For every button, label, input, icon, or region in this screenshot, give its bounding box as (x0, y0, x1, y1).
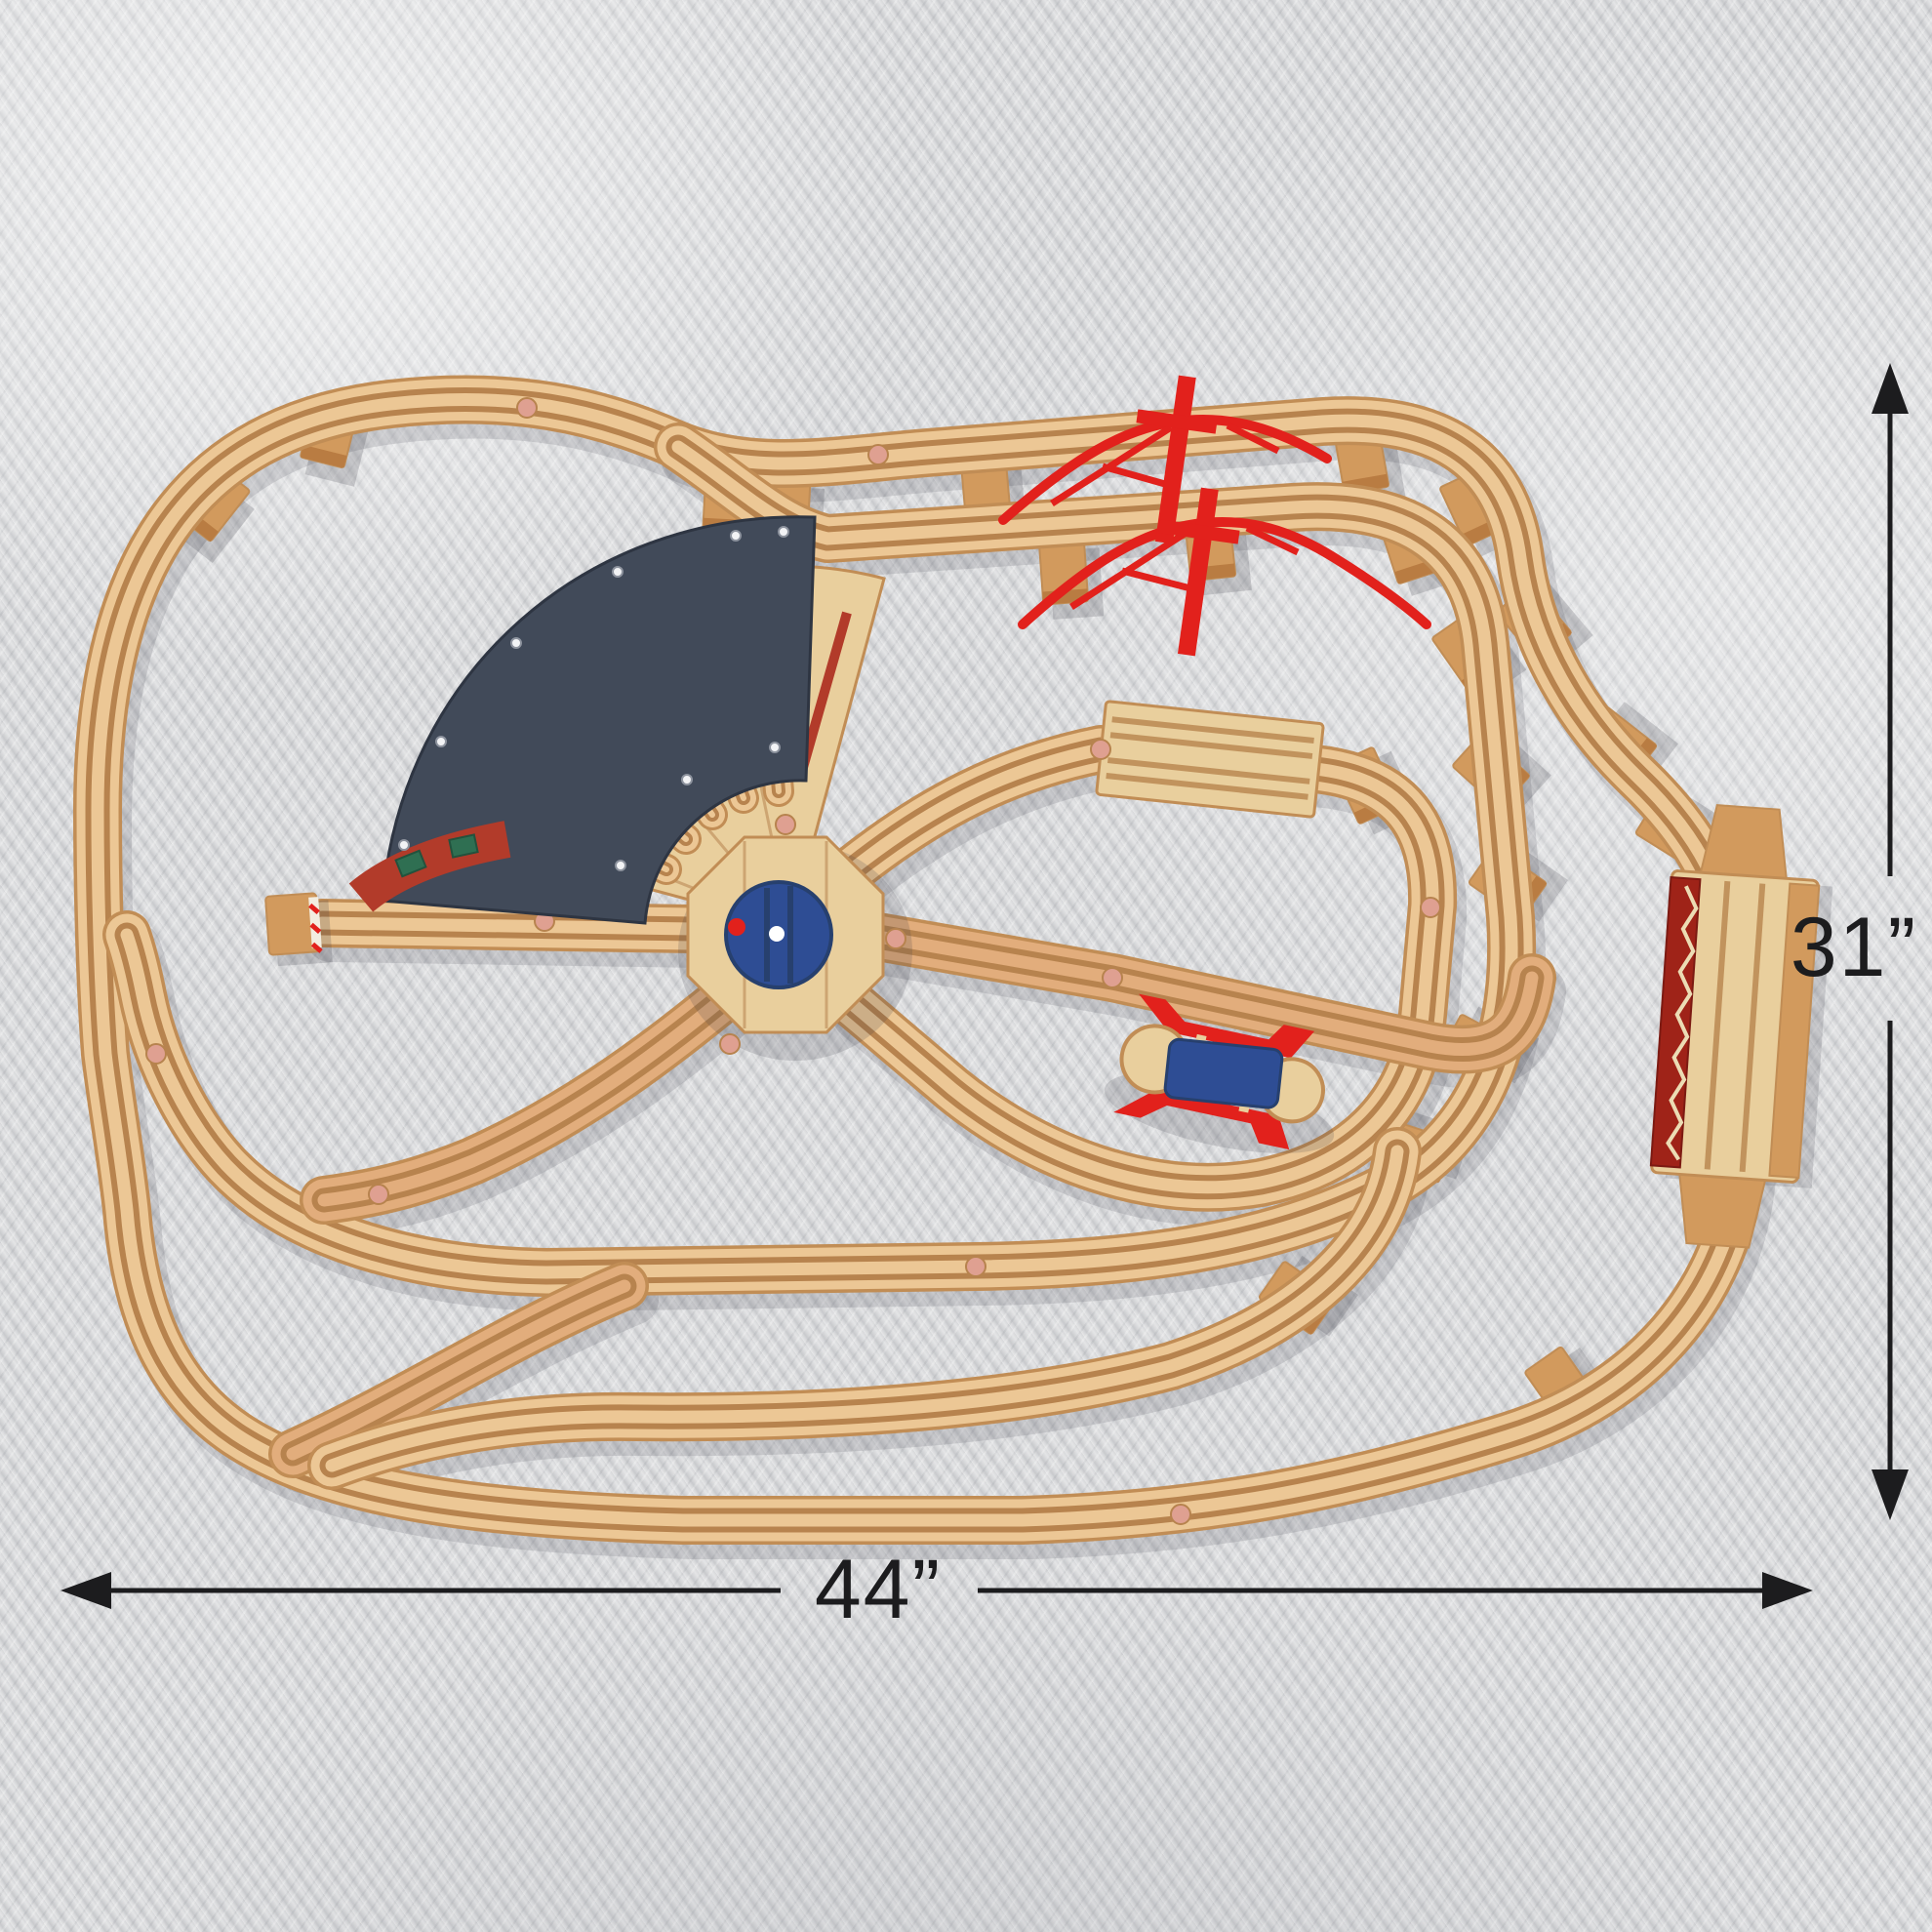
double-straight-track (1097, 702, 1324, 818)
width-dimension-label: 44” (815, 1543, 942, 1636)
buffer-stop (265, 892, 333, 966)
bridge-ramp (1701, 804, 1791, 878)
bridge-ramp (1674, 1174, 1765, 1248)
arrow-up-icon (1872, 363, 1909, 414)
height-dimension-label: 31” (1791, 901, 1917, 994)
turntable-knob (728, 918, 745, 936)
turntable-center (769, 926, 785, 942)
arrow-left-icon (60, 1572, 111, 1609)
arrow-down-icon (1872, 1469, 1909, 1520)
girder-bridge (1645, 802, 1837, 1251)
siding-track-west (322, 923, 693, 929)
train-set-illustration: 44” 31” (0, 0, 1932, 1932)
arrow-right-icon (1762, 1572, 1813, 1609)
product-photo: 44” 31” (0, 0, 1932, 1932)
crane-drum (1164, 1038, 1283, 1108)
